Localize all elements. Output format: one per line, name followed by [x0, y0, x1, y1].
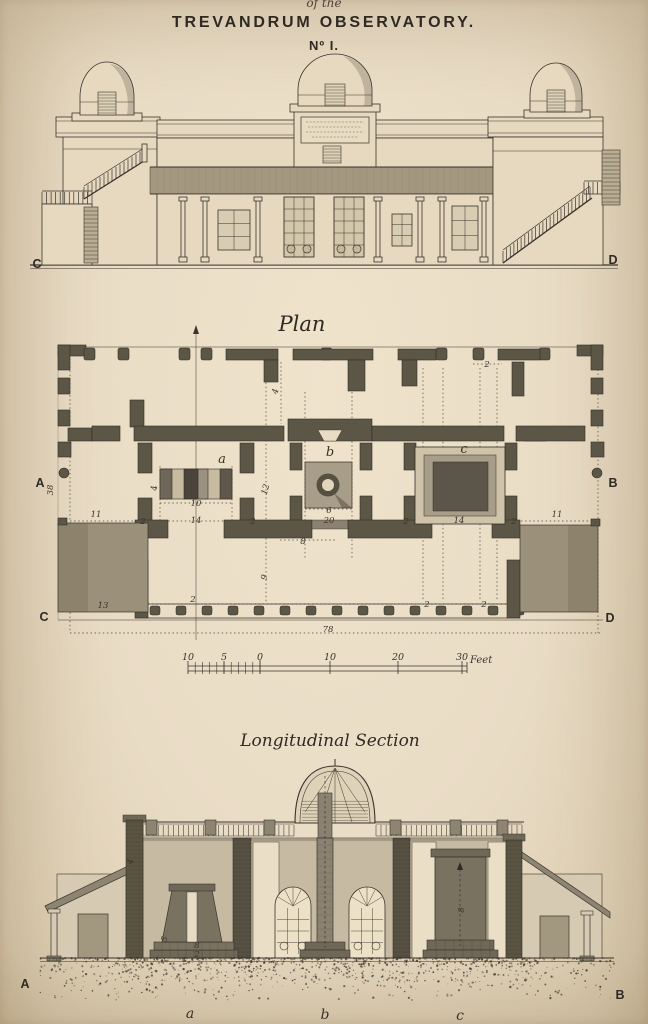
section-arched-window-right	[349, 887, 385, 958]
dim-label: 78	[323, 625, 334, 635]
section-left-porch	[45, 866, 128, 961]
roomlbl-label: b	[326, 445, 334, 460]
elevation-figure: C D	[30, 54, 620, 271]
dim-label: 38	[46, 484, 56, 495]
plan-letter-a: A	[35, 476, 44, 490]
plate-pretitle: of the	[306, 0, 341, 10]
plbl-label: a	[186, 1006, 194, 1022]
dim-label: 2	[423, 600, 429, 610]
verandah-columns	[150, 606, 524, 615]
dim-label: 2	[483, 360, 489, 370]
elevation-letter-d: D	[608, 253, 617, 267]
dim-label: 2	[510, 517, 516, 527]
snum-label: 10	[324, 652, 336, 663]
snum-label: 20	[391, 652, 404, 663]
dim-label: 2	[480, 600, 486, 610]
right-dome	[524, 63, 590, 118]
dim-label: 8	[457, 907, 467, 913]
equatorial-pier	[305, 462, 352, 508]
plan-caption: Plan	[278, 312, 326, 336]
dim-label: 2	[249, 517, 255, 527]
scale-unit-label: Feet	[469, 655, 493, 666]
left-dome	[72, 62, 142, 121]
dim-label: 12	[260, 483, 272, 496]
central-dome	[290, 54, 380, 112]
ground-stipple-dense	[117, 957, 541, 983]
dome-pier	[415, 447, 505, 524]
plan-letter-d: D	[605, 611, 614, 625]
dim-label: 11	[91, 510, 102, 520]
dim-label: 13	[98, 601, 109, 611]
plan-letter-c: C	[39, 610, 48, 624]
inscription-tablet	[301, 117, 369, 143]
dim-label: 2	[193, 950, 199, 960]
dim-label: 11	[552, 510, 563, 520]
dim-label: 14	[191, 516, 202, 526]
verandah-roof-band	[150, 167, 497, 194]
plate-drawing: of the TREVANDRUM OBSERVATORY. Nº I.	[0, 0, 648, 1024]
scale-bar: 1050102030 Feet	[182, 652, 493, 674]
plan-figure: Plan	[35, 312, 617, 640]
dim-label: 14	[454, 516, 465, 526]
engraved-plate: of the TREVANDRUM OBSERVATORY. Nº I.	[0, 0, 648, 1024]
dim-label: 4	[150, 485, 160, 491]
snum-label: 30	[456, 652, 468, 663]
plate-title: TREVANDRUM OBSERVATORY.	[172, 14, 476, 31]
dim-label: 10	[191, 499, 202, 509]
scale-numbers: 1050102030	[182, 652, 468, 663]
roomlbl-label: a	[218, 452, 226, 467]
central-attic-block	[294, 110, 376, 167]
dim-label: 9	[260, 573, 271, 581]
title-block: of the TREVANDRUM OBSERVATORY. Nº I.	[172, 0, 476, 53]
section-letter-b: B	[615, 988, 624, 1002]
section-pier-labels: abc	[186, 1006, 464, 1024]
dim-label: 20	[323, 516, 335, 526]
dim-label: 2	[189, 595, 195, 605]
plbl-label: b	[321, 1007, 330, 1023]
snum-label: 5	[221, 652, 227, 663]
section-right-porch	[522, 852, 610, 961]
plan-letter-b: B	[608, 476, 617, 490]
plate-number: Nº I.	[309, 38, 339, 53]
plbl-label: c	[456, 1008, 464, 1024]
dim-label: 4	[270, 388, 281, 397]
section-caption: Longitudinal Section	[239, 731, 420, 751]
transit-pier	[160, 469, 232, 499]
section-dome	[295, 759, 375, 823]
dim-label: 2	[402, 517, 408, 527]
ground-stipple	[40, 957, 615, 1001]
roomlbl-label: c	[460, 442, 468, 457]
dim-label: 2	[139, 517, 145, 527]
snum-label: 0	[257, 652, 263, 663]
section-figure: Longitudinal Section	[20, 731, 624, 1024]
section-letter-a: A	[20, 977, 29, 991]
dim-label: 8	[300, 537, 306, 547]
elevation-letter-c: C	[32, 257, 41, 271]
dim-label: 6	[326, 506, 332, 516]
snum-label: 10	[182, 652, 194, 663]
